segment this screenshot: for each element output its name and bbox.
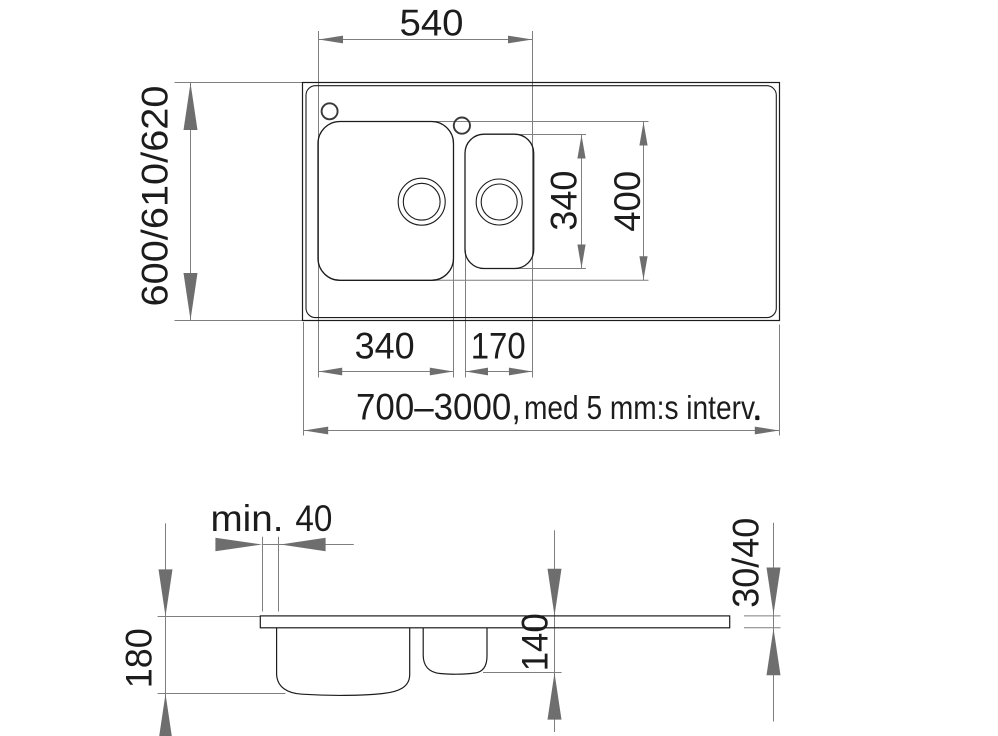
svg-text:540: 540 <box>400 2 464 43</box>
svg-text:700–3000,: 700–3000, <box>356 387 521 428</box>
svg-text:med 5 mm:s interv: med 5 mm:s interv <box>524 389 755 426</box>
svg-text:340: 340 <box>355 326 415 367</box>
svg-text:170: 170 <box>471 326 526 367</box>
svg-text:180: 180 <box>119 628 160 688</box>
svg-text:340: 340 <box>544 171 585 231</box>
svg-text:400: 400 <box>607 171 648 232</box>
svg-text:600/610/620: 600/610/620 <box>135 85 176 306</box>
svg-text:140: 140 <box>515 613 556 671</box>
svg-text:min.: min. <box>211 498 284 539</box>
svg-text:40: 40 <box>295 498 332 539</box>
svg-text:30/40: 30/40 <box>726 518 767 608</box>
